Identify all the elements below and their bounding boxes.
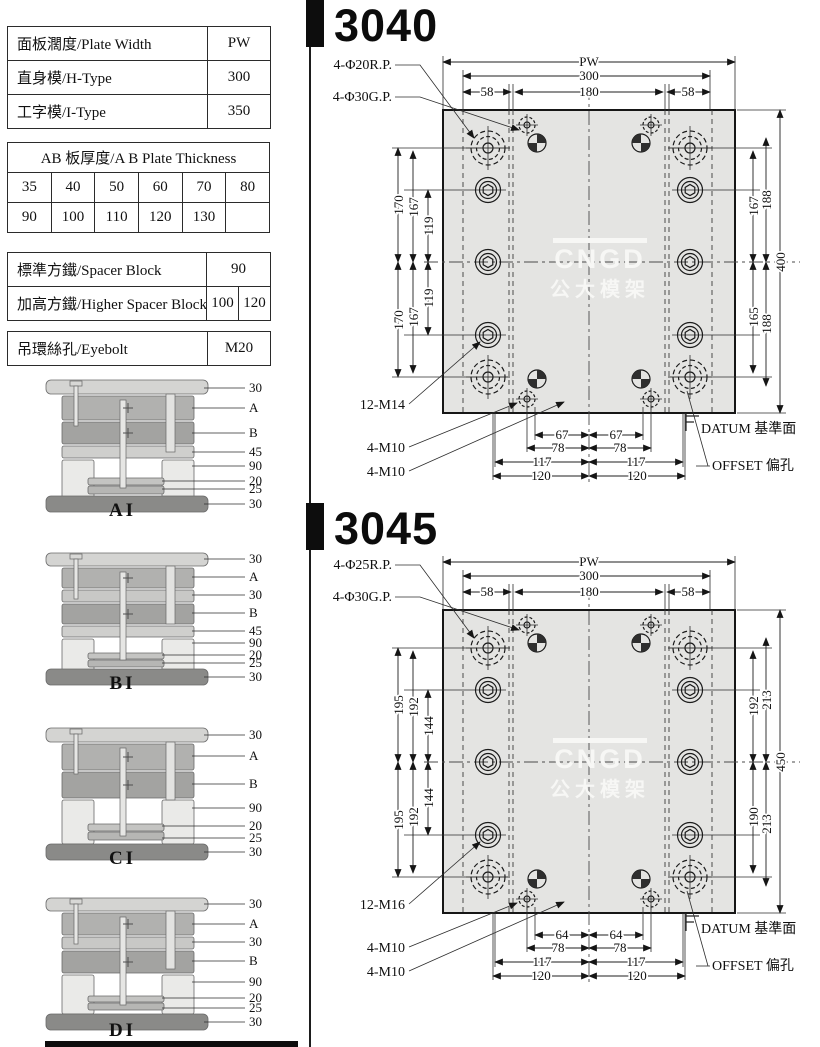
dim-label: 117: [626, 454, 646, 469]
layer-dim-label: 25: [249, 830, 262, 845]
layer-dim-label: 30: [249, 727, 262, 742]
ejector-pin: [120, 572, 126, 660]
table-row: 35 40 50 60 70 80: [8, 173, 270, 203]
dim-label: 120: [627, 968, 647, 983]
spec-label: 吊環絲孔/Eyebolt: [8, 332, 208, 366]
dim-label: 195: [391, 695, 406, 715]
table-row: 加高方鐵/Higher Spacer Block 100 120: [8, 287, 271, 321]
mold-caption: AI: [40, 500, 205, 522]
dim-label: 167: [406, 197, 421, 217]
dim-label: 58: [682, 584, 695, 599]
guide-pin: [166, 566, 175, 624]
plan-drawing-3040: CNGD公大模架PW300581805817017016716711911916…: [312, 0, 820, 500]
spec-label: 標準方鐵/Spacer Block: [8, 253, 207, 287]
logo-bar: [553, 238, 647, 243]
table-row: 吊環絲孔/Eyebolt M20: [8, 332, 271, 366]
mold-section-DI: 30A30B90202530: [32, 896, 290, 1036]
dim-label: 117: [626, 954, 646, 969]
layer-dim-label: 45: [249, 444, 262, 459]
logo-bar: [553, 738, 647, 743]
table-row: 90 100 110 120 130: [8, 203, 270, 233]
screw-head: [70, 381, 82, 386]
dim-label: 120: [531, 468, 551, 483]
spacer-block-table: 標準方鐵/Spacer Block 90 加高方鐵/Higher Spacer …: [7, 252, 271, 321]
spec-value: 350: [208, 95, 271, 129]
layer-dim-label: 25: [249, 655, 262, 670]
thickness-cell: 80: [226, 173, 270, 203]
dim-label: 117: [532, 954, 552, 969]
dim-label: PW: [579, 54, 599, 69]
table-row: AB 板厚度/A B Plate Thickness: [8, 143, 270, 173]
dim-label: 170: [391, 310, 406, 330]
thickness-cell: 120: [138, 203, 182, 233]
layer-dim-label: 30: [249, 1014, 262, 1029]
spec-value: 300: [208, 61, 271, 95]
mold-section-BI: 30A30B4590202530: [32, 551, 290, 691]
dim-label: 192: [406, 697, 421, 717]
watermark-logo: CNGD: [554, 244, 646, 274]
catalog-page: 面板濶度/Plate Width PW 直身模/H-Type 300 工字模/I…: [0, 0, 820, 1047]
mold-section-CI: 30AB90202530: [32, 726, 290, 866]
ejector-pin: [120, 748, 126, 836]
return-pin-callout: 4-Φ25R.P.: [334, 558, 392, 573]
guide-pin-callout: 4-Φ30G.P.: [333, 90, 392, 105]
mold-plate-layer: [162, 460, 194, 498]
table-row: 標準方鐵/Spacer Block 90: [8, 253, 271, 287]
layer-dim-label: 30: [249, 844, 262, 859]
screw-head: [70, 554, 82, 559]
dim-label: 58: [682, 84, 695, 99]
m10-callout: 4-M10: [367, 441, 405, 456]
dim-label: 120: [531, 968, 551, 983]
thickness-cell: [226, 203, 270, 233]
dim-label: 170: [391, 195, 406, 215]
dim-label: 58: [481, 84, 494, 99]
layer-dim-label: B: [249, 605, 258, 620]
layer-dim-label: 30: [249, 380, 262, 395]
thickness-cell: 35: [8, 173, 52, 203]
watermark-logo-cjk: 公大模架: [550, 777, 650, 801]
dim-label: 450: [773, 752, 788, 772]
dim-label: 119: [421, 288, 436, 307]
dim-label: 180: [579, 84, 599, 99]
dim-label: PW: [579, 554, 599, 569]
ejector-pin: [120, 917, 126, 1005]
dim-label: 117: [532, 454, 552, 469]
dim-label: 188: [759, 314, 774, 334]
mold-section-AI: 30AB4590202530: [32, 378, 290, 518]
guide-pin-callout: 4-Φ30G.P.: [333, 590, 392, 605]
layer-dim-label: 30: [249, 934, 262, 949]
layer-dim-label: 90: [249, 974, 262, 989]
thickness-title: AB 板厚度/A B Plate Thickness: [8, 143, 270, 173]
mold-plate-layer: [88, 660, 164, 667]
watermark-logo-cjk: 公大模架: [550, 277, 650, 301]
layer-dim-label: 30: [249, 669, 262, 684]
dim-label: 78: [552, 940, 565, 955]
layer-dim-label: 90: [249, 800, 262, 815]
mold-plate-layer: [162, 800, 194, 844]
spec-value: PW: [208, 27, 271, 61]
screw-shaft: [74, 559, 78, 599]
layer-dim-label: A: [249, 748, 259, 763]
return-pin-callout: 4-Φ20R.P.: [334, 58, 392, 73]
m10-callout: 4-M10: [367, 941, 405, 956]
offset-callout: OFFSET 偏孔: [712, 958, 794, 974]
table-row: 面板濶度/Plate Width PW: [8, 27, 271, 61]
layer-dim-label: 25: [249, 481, 262, 496]
layer-dim-label: 25: [249, 1000, 262, 1015]
watermark-logo: CNGD: [554, 744, 646, 774]
screw-head: [70, 899, 82, 904]
offset-callout: OFFSET 偏孔: [712, 458, 794, 474]
thickness-cell: 40: [51, 173, 95, 203]
layer-dim-label: A: [249, 400, 259, 415]
datum-callout: DATUM 基準面: [701, 420, 796, 437]
layer-dim-label: B: [249, 776, 258, 791]
screw-shaft: [74, 904, 78, 944]
layer-dim-label: 30: [249, 551, 262, 566]
dim-label: 144: [421, 788, 436, 808]
dim-label: 180: [579, 584, 599, 599]
dim-label: 58: [481, 584, 494, 599]
plan-drawing-3045: CNGD公大模架PW300581805819519519219214414419…: [312, 500, 820, 1047]
ejector-pin: [120, 400, 126, 488]
thickness-cell: 90: [8, 203, 52, 233]
mold-plate-layer: [62, 626, 194, 637]
thickness-cell: 70: [182, 173, 226, 203]
screw-shaft: [74, 734, 78, 774]
guide-pin: [166, 394, 175, 452]
datum-callout: DATUM 基準面: [701, 920, 796, 937]
layer-dim-label: B: [249, 953, 258, 968]
spec-label: 面板濶度/Plate Width: [8, 27, 208, 61]
dim-label: 119: [421, 216, 436, 235]
dim-label: 213: [759, 690, 774, 710]
dim-label: 400: [773, 252, 788, 272]
spec-value: 100: [207, 287, 239, 321]
m10-callout: 4-M10: [367, 465, 405, 480]
spec-label: 直身模/H-Type: [8, 61, 208, 95]
layer-dim-label: 30: [249, 587, 262, 602]
layer-dim-label: 30: [249, 896, 262, 911]
screws-callout: 12-M16: [360, 898, 405, 913]
dim-label: 78: [552, 440, 565, 455]
guide-pin: [166, 742, 175, 800]
eyebolt-table: 吊環絲孔/Eyebolt M20: [7, 331, 271, 366]
dim-label: 300: [579, 568, 599, 583]
dim-label: 300: [579, 68, 599, 83]
spec-value: 90: [207, 253, 271, 287]
mold-caption: CI: [40, 848, 205, 870]
layer-dim-label: 30: [249, 496, 262, 511]
layer-dim-label: A: [249, 916, 259, 931]
guide-pin: [166, 911, 175, 969]
thickness-cell: 50: [95, 173, 139, 203]
spec-value: 120: [239, 287, 271, 321]
screw-shaft: [74, 386, 78, 426]
dim-label: 192: [406, 807, 421, 827]
mold-caption: BI: [40, 673, 205, 695]
dim-label: 195: [391, 810, 406, 830]
ab-plate-thickness-table: AB 板厚度/A B Plate Thickness 35 40 50 60 7…: [7, 142, 270, 233]
dim-label: 120: [627, 468, 647, 483]
screws-callout: 12-M14: [360, 398, 405, 413]
layer-dim-label: 90: [249, 458, 262, 473]
spec-label: 工字模/I-Type: [8, 95, 208, 129]
thickness-cell: 60: [138, 173, 182, 203]
plate-width-table: 面板濶度/Plate Width PW 直身模/H-Type 300 工字模/I…: [7, 26, 271, 129]
screw-head: [70, 729, 82, 734]
dim-label: 167: [406, 307, 421, 327]
layer-dim-label: A: [249, 569, 259, 584]
dim-label: 78: [614, 940, 627, 955]
thickness-cell: 100: [51, 203, 95, 233]
spec-label: 加高方鐵/Higher Spacer Block: [8, 287, 207, 321]
page-footer-bar: [45, 1041, 298, 1047]
spec-value: M20: [208, 332, 271, 366]
table-row: 直身模/H-Type 300: [8, 61, 271, 95]
layer-dim-label: B: [249, 425, 258, 440]
m10-callout: 4-M10: [367, 965, 405, 980]
thickness-cell: 110: [95, 203, 139, 233]
table-row: 工字模/I-Type 350: [8, 95, 271, 129]
dim-label: 188: [759, 190, 774, 210]
dim-label: 144: [421, 716, 436, 736]
dim-label: 78: [614, 440, 627, 455]
thickness-cell: 130: [182, 203, 226, 233]
dim-label: 213: [759, 814, 774, 834]
mold-caption: DI: [40, 1020, 205, 1042]
